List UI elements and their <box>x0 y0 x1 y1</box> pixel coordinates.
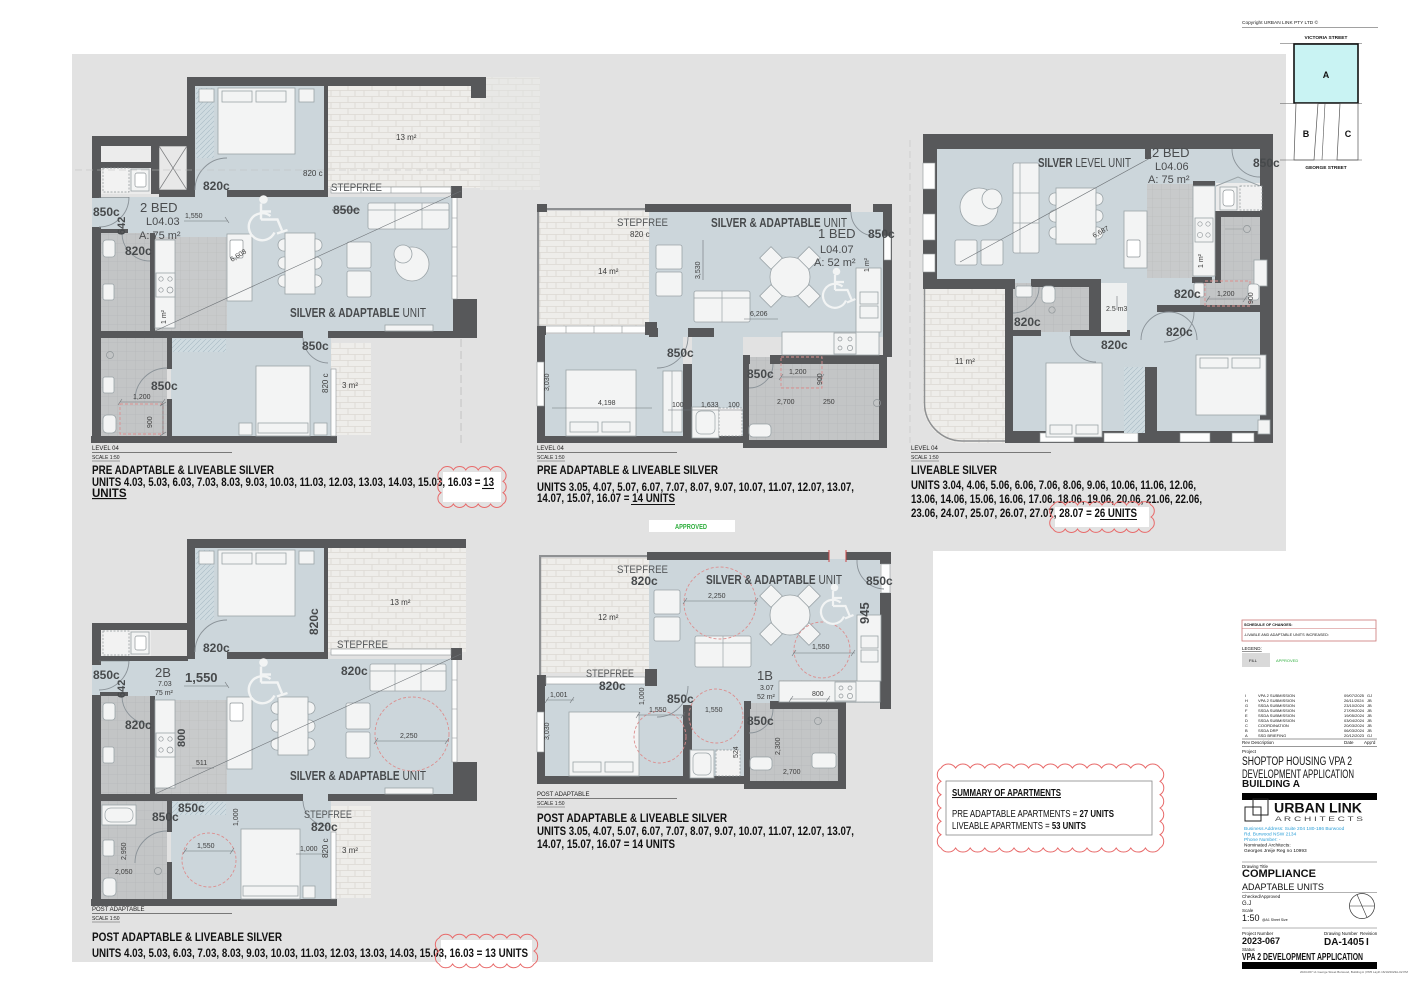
svg-text:Rd. Burwood NSW 2134: Rd. Burwood NSW 2134 <box>1244 832 1297 838</box>
svg-text:2023-067 v1 George Street Burw: 2023-067 v1 George Street Burwood, Build… <box>1300 970 1408 974</box>
svg-text:UNITS: UNITS <box>92 488 127 500</box>
svg-text:G.J: G.J <box>1242 901 1251 907</box>
svg-text:850c: 850c <box>93 205 120 219</box>
svg-text:@A1 Sheet Size: @A1 Sheet Size <box>1262 918 1288 922</box>
svg-text:SILVER LEVEL UNIT: SILVER LEVEL UNIT <box>1038 156 1131 170</box>
svg-text:850c: 850c <box>152 810 179 824</box>
svg-text:APPROVED: APPROVED <box>675 522 707 531</box>
svg-text:1,000: 1,000 <box>300 846 318 853</box>
svg-text:2,950: 2,950 <box>121 842 128 860</box>
svg-text:900: 900 <box>817 373 824 385</box>
svg-text:PRE ADAPTABLE & LIVEABLE SILVE: PRE ADAPTABLE & LIVEABLE SILVER <box>537 465 719 477</box>
svg-text:ADAPTABLE UNITS: ADAPTABLE UNITS <box>1242 882 1324 892</box>
svg-text:I: I <box>1366 937 1369 948</box>
svg-text:1,550: 1,550 <box>185 670 218 685</box>
svg-text:850c: 850c <box>866 574 893 588</box>
svg-text:820 c: 820 c <box>630 230 650 239</box>
svg-text:850c: 850c <box>302 339 329 353</box>
svg-text:Project: Project <box>1242 749 1257 754</box>
svg-text:VICTORIA STREET: VICTORIA STREET <box>1305 35 1348 41</box>
svg-text:DA-1405: DA-1405 <box>1324 937 1364 948</box>
svg-text:LEVEL 04: LEVEL 04 <box>92 446 119 452</box>
svg-text:14.07, 15.07, 16.07 = 14 UNITS: 14.07, 15.07, 16.07 = 14 UNITS <box>537 493 675 505</box>
svg-text:SCALE 1:50: SCALE 1:50 <box>537 455 565 461</box>
svg-text:800: 800 <box>176 729 188 747</box>
svg-text:L04.07: L04.07 <box>820 244 854 256</box>
svg-text:3,530: 3,530 <box>695 261 702 279</box>
svg-text:A: A <box>1245 733 1248 738</box>
svg-text:1 m²: 1 m² <box>1198 253 1205 268</box>
svg-text:A: 52 m²: A: 52 m² <box>814 257 856 269</box>
svg-text:2,250: 2,250 <box>400 733 418 740</box>
svg-text:1:50: 1:50 <box>1242 913 1260 923</box>
svg-text:C: C <box>1345 129 1352 139</box>
svg-text:POST ADAPTABLE: POST ADAPTABLE <box>537 792 589 798</box>
svg-text:LIVEABLE SILVER: LIVEABLE SILVER <box>911 465 998 477</box>
svg-text:2023-067: 2023-067 <box>1242 936 1280 946</box>
svg-text:App'd: App'd <box>1364 740 1376 745</box>
svg-text:642: 642 <box>116 680 128 698</box>
svg-text:820c: 820c <box>203 641 230 655</box>
svg-text:1 m²: 1 m² <box>161 309 168 324</box>
svg-text:820c: 820c <box>1101 338 1128 352</box>
svg-text:BUILDING A: BUILDING A <box>1242 779 1300 790</box>
svg-text:STEPFREE: STEPFREE <box>617 217 668 229</box>
svg-text:SCALE 1:50: SCALE 1:50 <box>92 916 120 922</box>
svg-text:820 c: 820 c <box>321 838 330 858</box>
svg-text:820c: 820c <box>1166 325 1193 339</box>
svg-text:850c: 850c <box>747 367 774 381</box>
svg-text:Phone Number: -: Phone Number: - <box>1244 837 1281 843</box>
svg-text:A: 75 m²: A: 75 m² <box>1148 174 1190 186</box>
svg-text:820c: 820c <box>125 244 152 258</box>
svg-text:STEPFREE: STEPFREE <box>331 182 382 194</box>
svg-text:850c: 850c <box>178 801 205 815</box>
svg-text:APPROVED: APPROVED <box>1276 658 1298 663</box>
svg-text:820c: 820c <box>631 574 658 588</box>
svg-text:2,250: 2,250 <box>708 593 726 600</box>
svg-text:13 m²: 13 m² <box>396 133 417 142</box>
svg-text:2,700: 2,700 <box>783 769 801 776</box>
svg-text:Revision: Revision <box>1360 931 1378 936</box>
svg-text:524: 524 <box>733 746 740 758</box>
svg-text:Checked/Approved: Checked/Approved <box>1242 894 1281 899</box>
svg-text:Nominated Architects:: Nominated Architects: <box>1244 843 1291 849</box>
svg-text:1,001: 1,001 <box>550 692 568 699</box>
svg-text:SCHEDULE OF CHANGES:: SCHEDULE OF CHANGES: <box>1244 623 1293 627</box>
svg-text:3 m²: 3 m² <box>342 381 358 390</box>
svg-text:1,633: 1,633 <box>701 402 719 409</box>
svg-text:642: 642 <box>116 217 128 235</box>
svg-text:2 BED: 2 BED <box>140 200 178 215</box>
svg-text:850c: 850c <box>1253 156 1280 170</box>
svg-text:4,198: 4,198 <box>598 400 616 407</box>
svg-text:900: 900 <box>1248 292 1255 304</box>
svg-text:75 m²: 75 m² <box>155 690 174 697</box>
svg-text:14 m²: 14 m² <box>598 267 619 276</box>
svg-text:SUMMARY OF APARTMENTS: SUMMARY OF APARTMENTS <box>952 787 1061 799</box>
svg-text:820c: 820c <box>341 664 368 678</box>
svg-text:820c: 820c <box>1014 315 1041 329</box>
svg-text:L04.03: L04.03 <box>146 216 180 228</box>
svg-text:PRE ADAPTABLE & LIVEABLE SILVE: PRE ADAPTABLE & LIVEABLE SILVER <box>92 465 275 477</box>
svg-text:SILVER & ADAPTABLE UNIT: SILVER & ADAPTABLE UNIT <box>290 769 426 783</box>
svg-text:Drawing Number: Drawing Number <box>1324 931 1358 936</box>
svg-text:LEGEND:: LEGEND: <box>1242 646 1262 651</box>
svg-text:1B: 1B <box>757 668 773 683</box>
svg-text:850c: 850c <box>667 692 694 706</box>
svg-text:A: 75 m²: A: 75 m² <box>139 230 181 242</box>
svg-text:3,030: 3,030 <box>544 722 551 740</box>
svg-text:100: 100 <box>728 402 740 409</box>
svg-text:1,000: 1,000 <box>233 808 240 826</box>
svg-text:2,300: 2,300 <box>775 737 782 755</box>
svg-text:SSD BRIEFING: SSD BRIEFING <box>1258 733 1286 738</box>
svg-text:3 m²: 3 m² <box>342 846 358 855</box>
svg-text:3.07: 3.07 <box>760 685 774 692</box>
svg-text:1,200: 1,200 <box>133 394 151 401</box>
svg-text:1,550: 1,550 <box>649 707 667 714</box>
svg-text:COMPLIANCE: COMPLIANCE <box>1242 868 1316 880</box>
svg-text:11 m²: 11 m² <box>955 357 975 366</box>
svg-text:UNITS 3.04, 4.06, 5.06, 6.06,: UNITS 3.04, 4.06, 5.06, 6.06, 7.06, 8.06… <box>911 480 1196 492</box>
svg-text:Copyright URBAN LINK PTY LTD ©: Copyright URBAN LINK PTY LTD © <box>1242 19 1319 26</box>
svg-text:511: 511 <box>196 760 207 767</box>
svg-text:URBAN LINK: URBAN LINK <box>1274 801 1362 816</box>
svg-text:23.06, 24.07, 25.07, 26.07, 27: 23.06, 24.07, 25.07, 26.07, 27.07, 28.07… <box>911 508 1137 520</box>
svg-text:12 m²: 12 m² <box>598 613 619 622</box>
svg-text:820c: 820c <box>311 820 338 834</box>
svg-text:Date: Date <box>1344 740 1354 745</box>
svg-text:7.03: 7.03 <box>158 681 172 688</box>
svg-text:LIVEABLE APARTMENTS = 53 UNITS: LIVEABLE APARTMENTS = 53 UNITS <box>952 820 1086 832</box>
svg-text:SCALE 1:50: SCALE 1:50 <box>537 801 565 807</box>
svg-text:Rev Description: Rev Description <box>1242 740 1274 745</box>
svg-text:SHOPTOP HOUSING VPA 2: SHOPTOP HOUSING VPA 2 <box>1242 756 1352 768</box>
svg-text:1 m²: 1 m² <box>864 257 871 272</box>
svg-text:PRE ADAPTABLE APARTMENTS = 27: PRE ADAPTABLE APARTMENTS = 27 UNITS <box>952 808 1114 820</box>
svg-text:Georges Jreije Reg no 10993: Georges Jreije Reg no 10993 <box>1244 848 1307 854</box>
svg-text:850c: 850c <box>868 227 895 241</box>
svg-text:VPA 2 DEVELOPMENT APPLICATION: VPA 2 DEVELOPMENT APPLICATION <box>1242 951 1363 963</box>
svg-text:13.06, 14.06, 15.06, 16.06, 17: 13.06, 14.06, 15.06, 16.06, 17.06, 18.06… <box>911 494 1202 506</box>
svg-text:3,030: 3,030 <box>544 373 551 391</box>
svg-text:800: 800 <box>812 691 824 698</box>
svg-text:POST ADAPTABLE: POST ADAPTABLE <box>92 907 144 913</box>
svg-text:FILL: FILL <box>1249 658 1258 663</box>
svg-text:820 c: 820 c <box>303 169 323 178</box>
svg-text:STEPFREE: STEPFREE <box>337 639 388 651</box>
svg-text:-LIVABLE AND ADAPTABLE UNITS I: -LIVABLE AND ADAPTABLE UNITS INCREASED: <box>1244 633 1329 637</box>
svg-text:850c: 850c <box>747 714 774 728</box>
svg-text:L04.06: L04.06 <box>1155 161 1189 173</box>
svg-text:SILVER & ADAPTABLE UNIT: SILVER & ADAPTABLE UNIT <box>706 573 842 587</box>
svg-text:820c: 820c <box>203 179 230 193</box>
svg-text:1,200: 1,200 <box>1217 291 1235 298</box>
svg-text:6,206: 6,206 <box>750 311 768 318</box>
svg-text:820c: 820c <box>599 679 626 693</box>
svg-text:850c: 850c <box>151 379 178 393</box>
svg-text:945: 945 <box>857 602 872 624</box>
svg-text:B: B <box>1303 129 1310 139</box>
svg-text:13 m²: 13 m² <box>390 598 411 607</box>
svg-text:1,550: 1,550 <box>197 843 215 850</box>
svg-text:820c: 820c <box>1174 287 1201 301</box>
svg-text:100: 100 <box>672 402 684 409</box>
svg-text:2B: 2B <box>155 665 171 680</box>
svg-text:1,550: 1,550 <box>705 707 723 714</box>
svg-text:250: 250 <box>823 399 835 406</box>
svg-text:POST ADAPTABLE & LIVEABLE SILV: POST ADAPTABLE & LIVEABLE SILVER <box>537 813 728 825</box>
svg-text:14.07, 15.07, 16.07 = 14 UNITS: 14.07, 15.07, 16.07 = 14 UNITS <box>537 839 675 851</box>
svg-text:2,050: 2,050 <box>115 869 133 876</box>
svg-text:UNITS 4.03, 5.03, 6.03, 7.03,: UNITS 4.03, 5.03, 6.03, 7.03, 8.03, 9.03… <box>92 477 494 489</box>
svg-text:850c: 850c <box>93 668 120 682</box>
svg-text:A: A <box>1323 70 1330 80</box>
svg-text:Business Address: Suite 204 18: Business Address: Suite 204 180-186 Burw… <box>1244 826 1345 832</box>
svg-text:820c: 820c <box>307 608 321 635</box>
svg-text:2 BED: 2 BED <box>1152 145 1190 160</box>
svg-text:UNITS 4.03, 5.03, 6.03, 7.03,: UNITS 4.03, 5.03, 6.03, 7.03, 8.03, 9.03… <box>92 948 528 960</box>
svg-text:UNITS 3.05, 4.07, 5.07, 6.07,: UNITS 3.05, 4.07, 5.07, 6.07, 7.07, 8.07… <box>537 826 854 838</box>
svg-text:1,000: 1,000 <box>639 687 646 705</box>
svg-text:1,550: 1,550 <box>812 644 830 651</box>
svg-text:850c: 850c <box>667 346 694 360</box>
svg-text:900: 900 <box>147 416 154 428</box>
svg-text:SILVER & ADAPTABLE UNIT: SILVER & ADAPTABLE UNIT <box>290 306 426 320</box>
svg-text:A R C H I T E C T S: A R C H I T E C T S <box>1275 816 1364 823</box>
svg-text:POST ADAPTABLE & LIVEABLE SILV: POST ADAPTABLE & LIVEABLE SILVER <box>92 932 283 944</box>
svg-text:SCALE 1:50: SCALE 1:50 <box>92 455 120 461</box>
svg-text:1 BED: 1 BED <box>818 226 856 241</box>
svg-text:52 m²: 52 m² <box>757 694 776 701</box>
svg-text:820 c: 820 c <box>321 373 330 393</box>
svg-text:820c: 820c <box>125 718 152 732</box>
svg-text:LEVEL 04: LEVEL 04 <box>537 446 564 452</box>
svg-text:1,550: 1,550 <box>185 213 203 220</box>
svg-text:GEORGE STREET: GEORGE STREET <box>1305 165 1346 171</box>
svg-text:20/12/2023: 20/12/2023 <box>1344 733 1365 738</box>
svg-text:2,700: 2,700 <box>777 399 795 406</box>
svg-text:LEVEL 04: LEVEL 04 <box>911 446 938 452</box>
svg-text:SCALE 1:50: SCALE 1:50 <box>911 455 939 461</box>
svg-text:1,200: 1,200 <box>789 369 807 376</box>
svg-text:GJ: GJ <box>1367 733 1372 738</box>
